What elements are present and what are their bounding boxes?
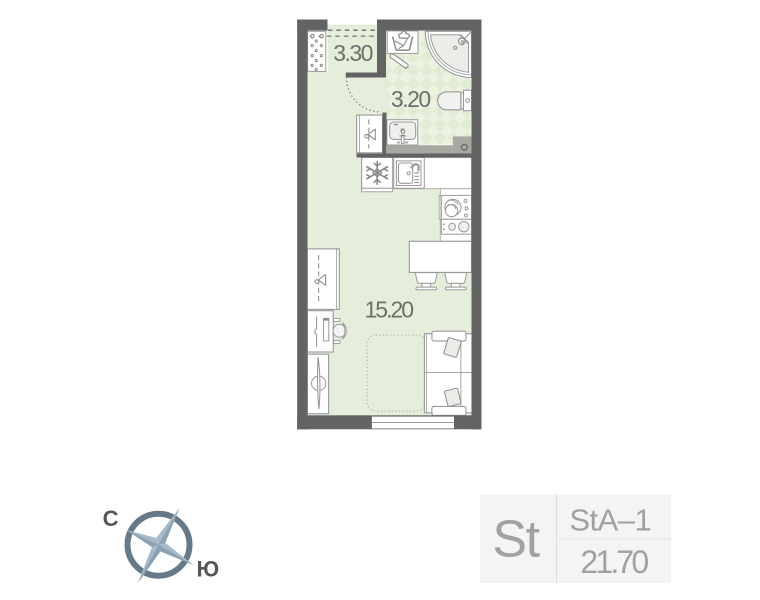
svg-text:St: St xyxy=(492,511,540,569)
svg-text:Ю: Ю xyxy=(196,557,219,582)
svg-text:3.20: 3.20 xyxy=(391,86,430,112)
svg-text:15.20: 15.20 xyxy=(365,296,414,322)
svg-text:3.30: 3.30 xyxy=(333,40,372,66)
svg-text:21.70: 21.70 xyxy=(580,544,648,580)
svg-text:StA–1: StA–1 xyxy=(569,503,651,538)
svg-text:С: С xyxy=(103,506,119,531)
